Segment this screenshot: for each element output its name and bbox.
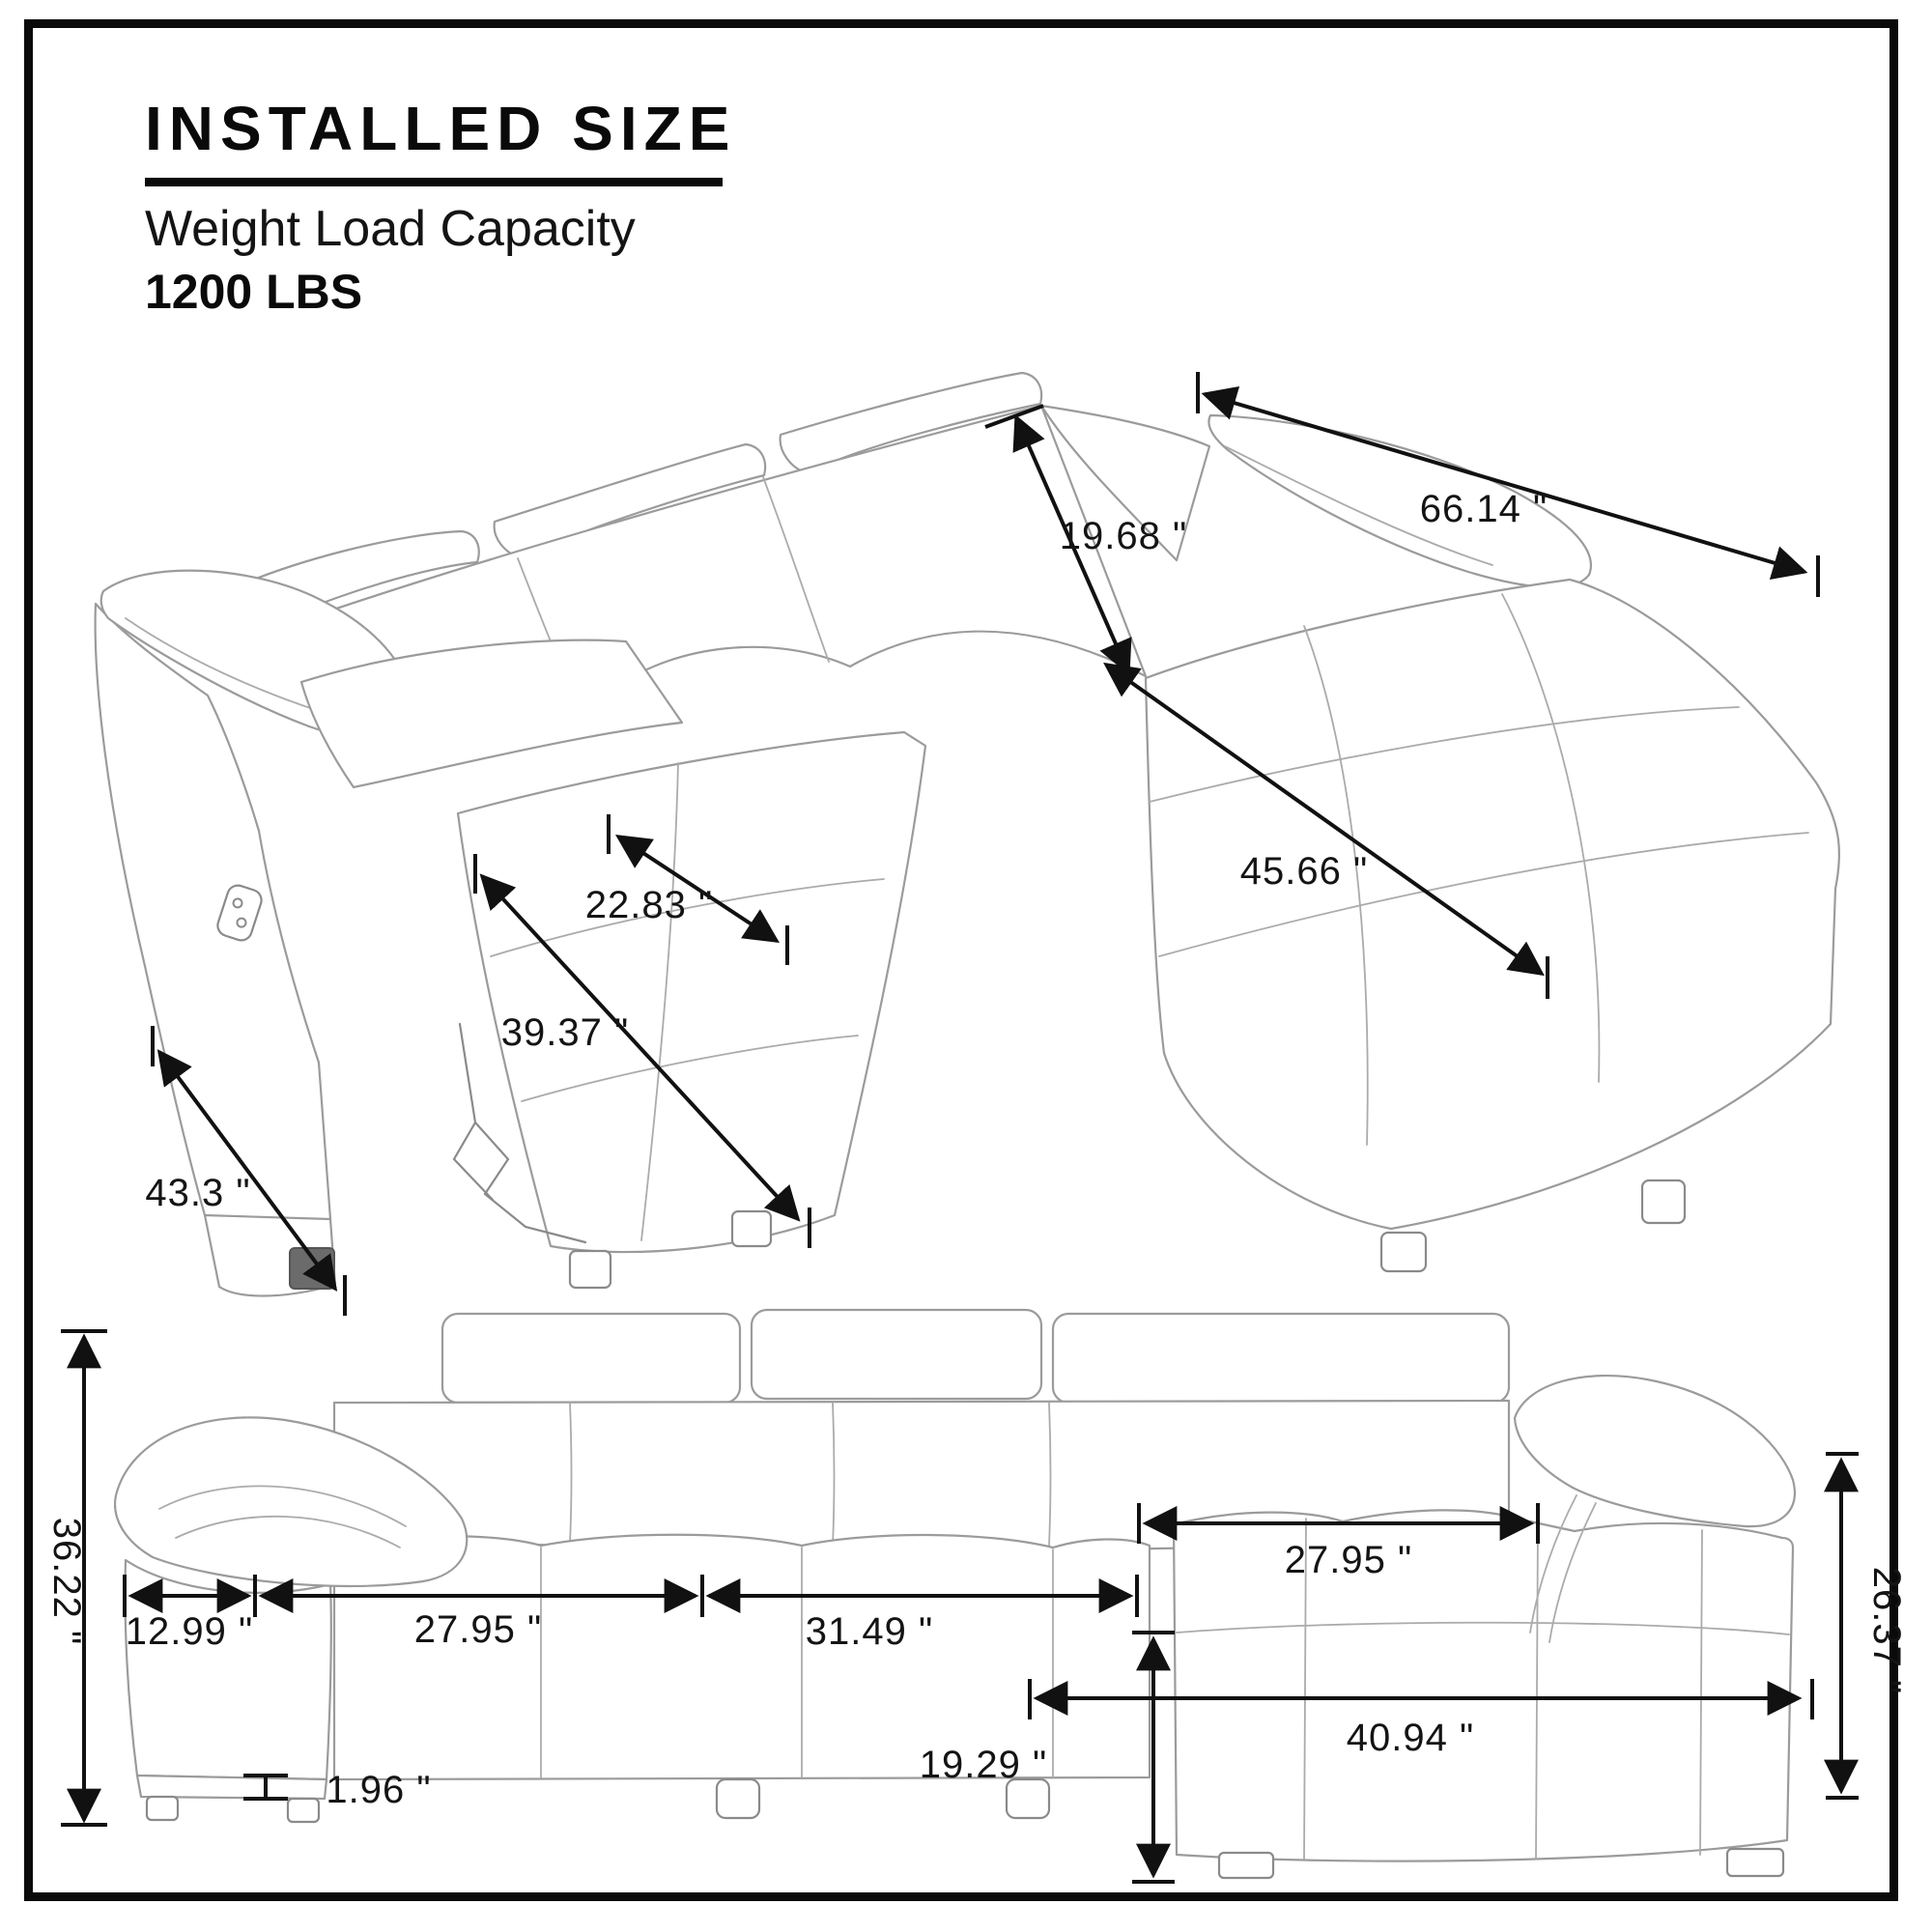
dim-chaise-arm-height-label: 26.37 " — [1865, 1567, 1908, 1694]
footrest-foot — [570, 1251, 611, 1288]
chaise-foot — [1381, 1233, 1426, 1271]
extended-recliner-footrest — [458, 732, 925, 1252]
dim-seat-width-label: 22.83 " — [585, 884, 713, 926]
top-view-drawing: 19.68 " 66.14 " 45.66 " 22.83 " 39.37 " … — [96, 372, 1839, 1316]
footrest-foot — [732, 1211, 771, 1246]
chaise-front-foot — [1219, 1853, 1273, 1878]
dim-recline-length-label: 39.37 " — [501, 1011, 629, 1054]
front-headrest — [752, 1310, 1041, 1399]
dim-total-width-label: 66.14 " — [1420, 488, 1548, 530]
dim-chaise-length-label: 45.66 " — [1240, 850, 1368, 893]
dim-back-height-label: 19.68 " — [1060, 515, 1187, 557]
front-seat-band — [334, 1535, 1150, 1779]
sofa-foot — [717, 1779, 759, 1818]
dim-chaise-length-front-label: 40.94 " — [1347, 1717, 1474, 1759]
front-chaise-armrest-pad — [1515, 1376, 1795, 1526]
front-headrest — [1053, 1314, 1509, 1403]
dim-right-seat-width-label: 31.49 " — [806, 1610, 933, 1653]
dim-chaise-seat-width-label: 27.95 " — [1285, 1539, 1412, 1581]
chaise-front-foot — [1727, 1849, 1783, 1876]
dim-leg-height-label: 1.96 " — [326, 1769, 431, 1811]
dimension-diagram: 19.68 " 66.14 " 45.66 " 22.83 " 39.37 " … — [0, 0, 1932, 1932]
dim-overall-height-label: 36.22 " — [45, 1518, 88, 1645]
dim-base-depth-label: 43.3 " — [145, 1172, 250, 1214]
front-headrest — [442, 1314, 740, 1403]
front-arm-body — [126, 1560, 331, 1779]
dim-arm-width-label: 12.99 " — [126, 1610, 253, 1653]
chaise-lounge-body — [1146, 580, 1839, 1229]
chaise-foot — [1642, 1180, 1685, 1223]
front-view-drawing: 36.22 " 12.99 " 27.95 " 31.49 " 27.95 " … — [45, 1310, 1908, 1882]
dim-seat-height-label: 19.29 " — [920, 1744, 1047, 1786]
arm-leg — [288, 1799, 319, 1822]
arm-leg — [147, 1797, 178, 1820]
dim-left-seat-width-label: 27.95 " — [414, 1608, 542, 1651]
arm-foot — [290, 1248, 334, 1289]
front-arm-base — [137, 1776, 327, 1799]
